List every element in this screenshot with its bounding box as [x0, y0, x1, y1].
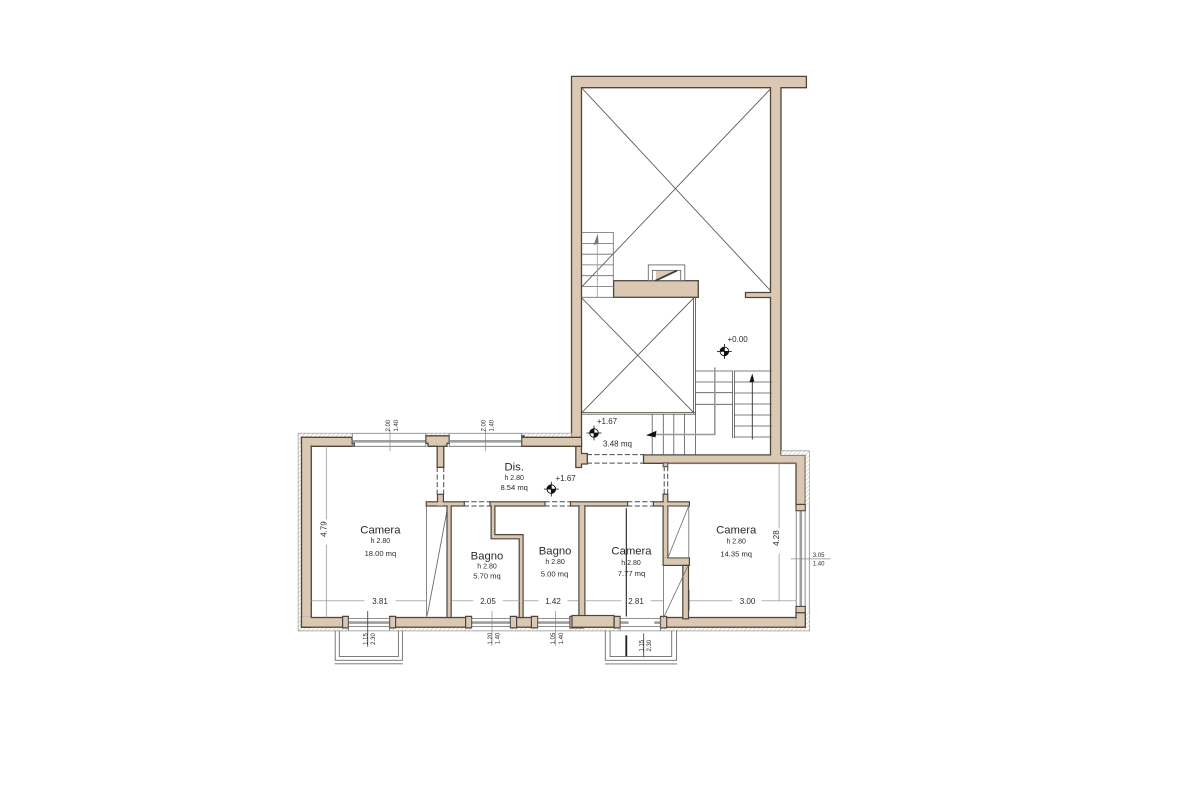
- svg-text:3.00: 3.00: [740, 597, 756, 606]
- svg-text:2.30: 2.30: [371, 633, 377, 645]
- svg-text:2.81: 2.81: [628, 597, 644, 606]
- svg-text:h 2.80: h 2.80: [621, 560, 641, 567]
- svg-text:3.81: 3.81: [372, 597, 388, 606]
- svg-text:14.35 mq: 14.35 mq: [720, 549, 752, 558]
- svg-text:2.05: 2.05: [480, 597, 496, 606]
- svg-text:7.77 mq: 7.77 mq: [618, 569, 645, 578]
- svg-text:2.30: 2.30: [647, 639, 653, 651]
- svg-text:Bagno: Bagno: [471, 550, 504, 562]
- svg-text:3.48 mq: 3.48 mq: [603, 440, 632, 449]
- svg-text:+1.67: +1.67: [555, 474, 576, 483]
- svg-text:h 2.80: h 2.80: [371, 538, 391, 545]
- svg-text:h 2.80: h 2.80: [504, 475, 524, 482]
- svg-text:8.54 mq: 8.54 mq: [500, 483, 527, 492]
- svg-text:+0.00: +0.00: [727, 335, 748, 344]
- svg-text:Camera: Camera: [360, 525, 401, 537]
- svg-text:1.40: 1.40: [496, 632, 502, 644]
- svg-text:1.15: 1.15: [639, 639, 645, 651]
- svg-text:Camera: Camera: [716, 525, 757, 537]
- svg-text:4.79: 4.79: [319, 521, 328, 537]
- svg-text:h 2.80: h 2.80: [545, 559, 565, 566]
- svg-text:4.28: 4.28: [772, 530, 781, 546]
- svg-text:2.00: 2.00: [386, 419, 392, 431]
- svg-text:1.40: 1.40: [489, 419, 495, 431]
- svg-text:1.40: 1.40: [394, 419, 400, 431]
- svg-text:2.00: 2.00: [482, 419, 488, 431]
- svg-text:5.70 mq: 5.70 mq: [473, 572, 500, 581]
- svg-text:h 2.80: h 2.80: [726, 539, 746, 546]
- svg-text:3.05: 3.05: [813, 553, 825, 559]
- svg-text:1.05: 1.05: [551, 632, 557, 644]
- svg-text:1.15: 1.15: [363, 633, 369, 645]
- svg-text:Camera: Camera: [611, 546, 652, 558]
- svg-text:1.42: 1.42: [545, 597, 561, 606]
- svg-text:+1.67: +1.67: [597, 417, 618, 426]
- svg-text:18.00 mq: 18.00 mq: [365, 549, 397, 558]
- svg-text:Dis.: Dis.: [504, 461, 523, 473]
- svg-text:1.20: 1.20: [488, 632, 494, 644]
- svg-text:h 2.80: h 2.80: [477, 564, 497, 571]
- svg-text:5.00 mq: 5.00 mq: [541, 569, 568, 578]
- svg-text:1.40: 1.40: [559, 632, 565, 644]
- svg-text:1.40: 1.40: [813, 561, 825, 567]
- svg-text:Bagno: Bagno: [539, 545, 572, 557]
